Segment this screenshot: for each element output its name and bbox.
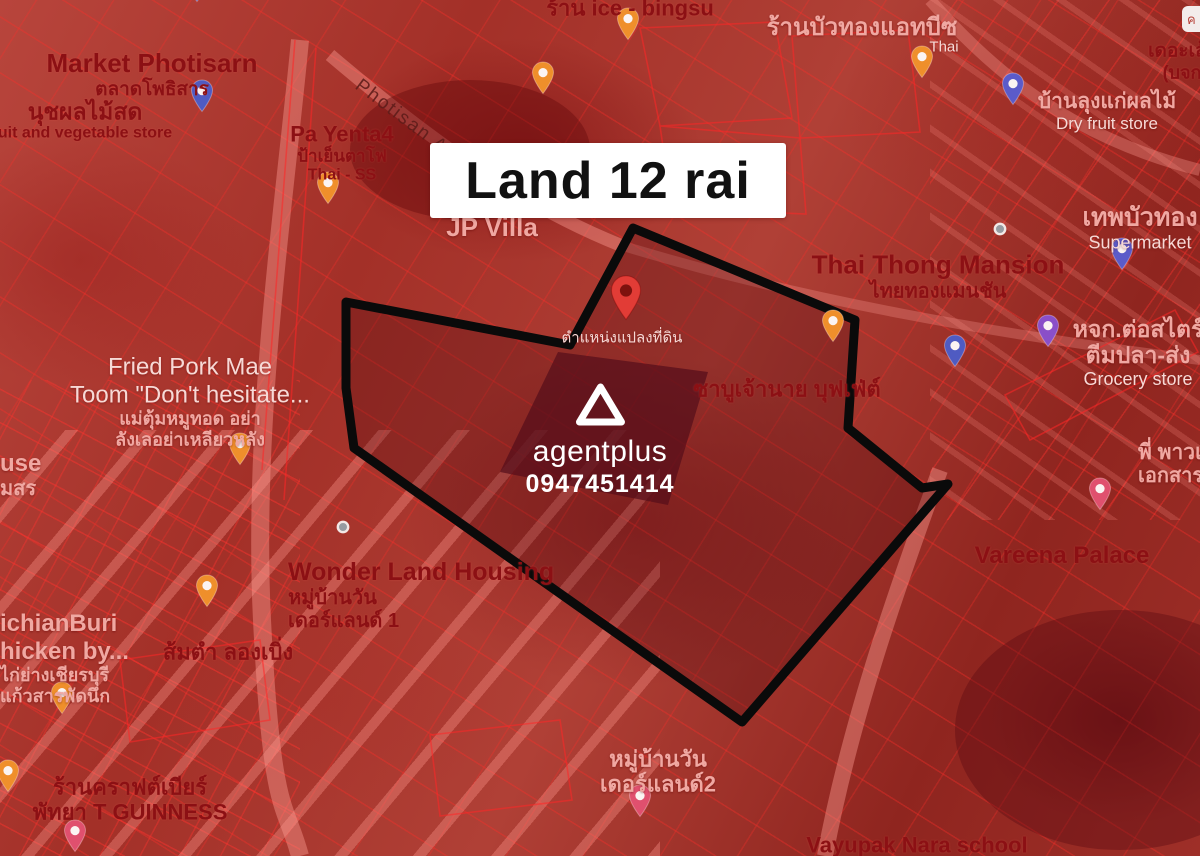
wonder-land-place-dot[interactable] xyxy=(335,519,351,540)
bottom-left-map-pin[interactable] xyxy=(62,819,88,856)
map-label-line: เดอะเล้ง xyxy=(1148,41,1200,63)
grocery-bag-map-pin[interactable] xyxy=(942,334,968,373)
map-label-line: ป้าเย็นตาโฟ xyxy=(290,147,394,167)
map-label-line: Fried Pork Mae xyxy=(70,354,310,382)
map-label-wonderland2: หมู่บ้านวันเดอร์แลนด์2 xyxy=(600,747,716,798)
map-label-p-power-documents: พี่ พาวเเอกสาร xyxy=(1138,441,1200,488)
map-label-pa-yenta4: Pa Yenta4ป้าเย็นตาโฟThai - SS xyxy=(290,121,394,184)
map-label-line: ตลาดโพธิสาร xyxy=(47,79,258,101)
map-label-craft-beer-guinness: ร้านคราฟต์เบียร์พัทยา T GUINNESS xyxy=(33,775,228,826)
cafe-map-pin[interactable] xyxy=(530,61,556,100)
land-plot-boundary xyxy=(346,228,948,722)
map-label-line: ซาบูเจ้านาย บุฟเฟ่ต์ xyxy=(693,376,880,401)
map-label-line: Thai Thong Mansion xyxy=(812,251,1065,281)
map-label-the-leng: เดอะเล้ง(บจก xyxy=(1148,41,1200,84)
map-label-line: use xyxy=(0,450,41,478)
ice-bingsu-map-pin[interactable] xyxy=(615,7,641,46)
map-label-use-msr: useมสร xyxy=(0,450,41,501)
map-label-line: Wonder Land Housing xyxy=(288,558,554,587)
parcel-outlines xyxy=(120,22,1198,816)
land-plot-pin[interactable] xyxy=(608,274,644,327)
map-label-vayupak-nara-school: Vayupak Nara school xyxy=(806,832,1027,856)
map-label-line: (บจก xyxy=(1148,63,1200,84)
wonderland2-map-pin[interactable] xyxy=(627,784,653,823)
corner-chip[interactable]: ค xyxy=(1182,6,1200,32)
map-label-thep-buathong: เทพบัวทองSupermarket xyxy=(1082,203,1197,252)
pa-yenta-map-pin[interactable] xyxy=(315,171,341,210)
plot-food-map-pin[interactable] xyxy=(820,309,846,348)
roads xyxy=(260,0,1200,856)
map-label-line: uit and vegetable store xyxy=(0,125,172,143)
map-label-line: Supermarket xyxy=(1082,232,1197,253)
map-label-line: หจก.ต่อสไตร์ xyxy=(1073,316,1200,342)
nuch-store-map-pin[interactable] xyxy=(189,79,215,118)
map-label-market-photisarn: Market Photisarnตลาดโพธิสาร xyxy=(47,49,258,101)
map-label-line: มสร xyxy=(0,478,41,501)
map-label-line: เดอร์แลนด์ 1 xyxy=(288,610,554,633)
map-label-line: ส้มตำ ลองเบิ่ง xyxy=(163,639,293,664)
thai-thong-place-dot[interactable] xyxy=(992,221,1008,242)
map-label-somtam-longboeng: ส้มตำ ลองเบิ่ง xyxy=(163,639,293,664)
map-label-line: ลังเลอย่าเหลียวหลัง xyxy=(70,430,310,451)
cadastral-lines-right xyxy=(930,0,1200,520)
map-label-thai-thong-mansion: Thai Thong Mansionไทยทองแมนชัน xyxy=(812,251,1065,304)
housing-streets-overlay xyxy=(0,430,660,856)
map-label-shabu-chaonai-buffet: ซาบูเจ้านาย บุฟเฟ่ต์ xyxy=(693,376,880,401)
map-label-wonder-land-housing: Wonder Land Housingหมู่บ้านวันเดอร์แลนด์… xyxy=(288,558,554,633)
vareena-map-pin[interactable] xyxy=(1087,477,1113,516)
satellite-map-surface[interactable]: Market Photisarnตลาดโพธิสารนุชผลไม้สดuit… xyxy=(0,0,1200,856)
supermarket-map-pin[interactable] xyxy=(1109,237,1135,276)
map-vector-layer xyxy=(0,0,1200,856)
cadastral-lines-left xyxy=(0,380,300,856)
map-label-grocery-store: หจก.ต่อสไตร์ตีมปลา-ส่งGrocery store xyxy=(1073,316,1200,390)
map-label-line: Vareena Palace xyxy=(975,542,1150,570)
map-label-dry-fruit-store: บ้านลุงแก่ผลไม้Dry fruit store xyxy=(1038,90,1176,134)
craft-beer-map-pin[interactable] xyxy=(0,759,21,798)
map-label-line: ตีมปลา-ส่ง xyxy=(1073,343,1200,369)
map-label-line: แม่ตุ้มหมูทอด อย่า xyxy=(70,409,310,430)
map-label-line: Dry fruit store xyxy=(1038,114,1176,134)
map-label-line: Grocery store xyxy=(1073,369,1200,390)
map-label-line: บ้านลุงแก่ผลไม้ xyxy=(1038,90,1176,114)
watermark-phone: 0947451414 xyxy=(525,470,674,499)
map-label-plot-position-label: ตำแหน่งแปลงที่ดิน xyxy=(562,329,683,346)
map-label-buathong-at-b: ร้านบัวทองแอทบีซ xyxy=(767,14,958,42)
map-label-line: ร้านคราฟต์เบียร์ xyxy=(33,775,228,800)
cadastral-lines-overlay xyxy=(0,0,1200,856)
map-label-line: ร้านบัวทองแอทบีซ xyxy=(767,14,958,42)
map-label-line: Toom "Don't hesitate... xyxy=(70,381,310,409)
grocery-violet-map-pin[interactable] xyxy=(1035,314,1061,353)
map-label-line: ตำแหน่งแปลงที่ดิน xyxy=(562,329,683,346)
fried-pork-map-pin[interactable] xyxy=(227,432,253,471)
market-top-map-pin[interactable] xyxy=(184,0,210,8)
dry-fruit-map-pin[interactable] xyxy=(1000,72,1026,111)
chicken-map-pin[interactable] xyxy=(49,681,75,720)
map-label-line: หมู่บ้านวัน xyxy=(600,747,716,772)
map-label-line: Thai - SS xyxy=(290,166,394,184)
map-label-line: hicken by... xyxy=(0,638,129,666)
land-size-card: Land 12 rai xyxy=(430,143,786,218)
map-label-line: Vayupak Nara school xyxy=(806,832,1027,856)
map-label-vareena-palace: Vareena Palace xyxy=(975,542,1150,570)
map-screenshot: { "title_card": { "text": "Land 12 rai" … xyxy=(0,0,1200,856)
map-label-line: เดอร์แลนด์2 xyxy=(600,772,716,797)
map-label-line: พี่ พาวเ xyxy=(1138,441,1200,465)
map-label-nuch-fruit-store: นุชผลไม้สดuit and vegetable store xyxy=(0,99,172,144)
map-label-line: Market Photisarn xyxy=(47,49,258,79)
map-label-line: ichianBuri xyxy=(0,610,129,638)
map-label-line: เอกสาร xyxy=(1138,465,1200,488)
somtam-map-pin[interactable] xyxy=(194,574,220,613)
map-label-line: หมู่บ้านวัน xyxy=(288,587,554,610)
map-label-line: Pa Yenta4 xyxy=(290,121,394,146)
buathong-map-pin[interactable] xyxy=(909,45,935,84)
map-label-line: เทพบัวทอง xyxy=(1082,203,1197,232)
map-label-line: นุชผลไม้สด xyxy=(0,99,172,125)
agentplus-watermark: agentplus 0947451414 xyxy=(525,382,674,499)
agentplus-triangle-logo-icon xyxy=(573,382,627,428)
map-label-fried-pork-mae-toom: Fried Pork MaeToom "Don't hesitate...แม่… xyxy=(70,354,310,451)
watermark-brand: agentplus xyxy=(525,435,674,469)
map-label-line: ไทยทองแมนชัน xyxy=(812,280,1065,303)
